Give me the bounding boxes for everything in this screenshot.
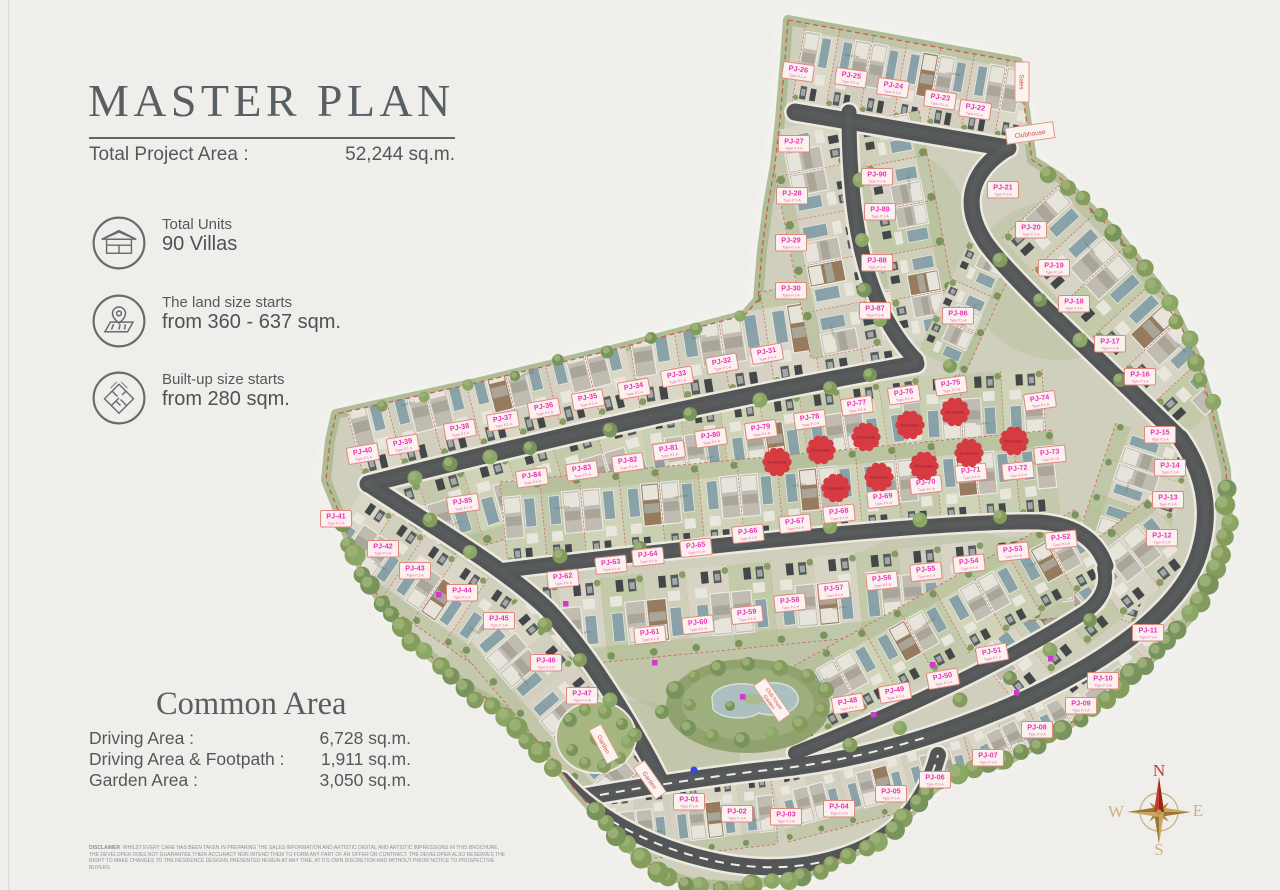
svg-text:E: E <box>1193 801 1203 820</box>
svg-text:N: N <box>1153 761 1165 780</box>
svg-text:W: W <box>1108 802 1125 821</box>
svg-text:S: S <box>1154 840 1163 859</box>
